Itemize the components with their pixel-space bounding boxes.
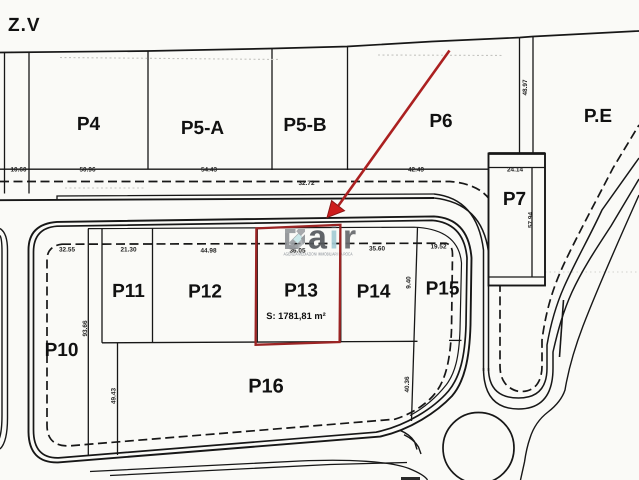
svg-text:42.49: 42.49	[408, 166, 424, 173]
svg-text:44.98: 44.98	[201, 248, 217, 255]
svg-text:P15: P15	[426, 279, 460, 300]
svg-text:P4: P4	[77, 114, 101, 135]
svg-text:57.94: 57.94	[528, 212, 535, 228]
svg-text:35.60: 35.60	[369, 246, 385, 253]
svg-text:P.E: P.E	[584, 106, 612, 127]
svg-text:40.36: 40.36	[404, 376, 411, 392]
svg-text:32.55: 32.55	[59, 247, 75, 254]
svg-text:49.43: 49.43	[111, 388, 118, 404]
svg-text:9.40: 9.40	[406, 276, 413, 289]
svg-text:P16: P16	[248, 376, 284, 398]
svg-text:50.96: 50.96	[80, 166, 96, 173]
svg-text:P13: P13	[284, 281, 318, 302]
svg-text:P11: P11	[112, 281, 145, 302]
svg-text:10.60: 10.60	[11, 166, 27, 173]
svg-text:19.52: 19.52	[431, 244, 447, 251]
svg-text:Z.V: Z.V	[8, 15, 41, 36]
svg-text:93.66: 93.66	[82, 320, 89, 336]
svg-text:32.72: 32.72	[299, 180, 315, 187]
svg-text:24.14: 24.14	[507, 166, 523, 173]
svg-text:P12: P12	[188, 282, 222, 303]
svg-text:P10: P10	[45, 340, 79, 361]
svg-text:P7: P7	[503, 189, 526, 210]
svg-text:P5-A: P5-A	[181, 118, 225, 139]
svg-text:P14: P14	[357, 282, 391, 303]
svg-text:21.30: 21.30	[121, 247, 137, 254]
svg-text:AGENZIA MEDIAZIONI IMMOBILIARI: AGENZIA MEDIAZIONI IMMOBILIARI LA ROCA	[284, 252, 353, 257]
svg-text:P6: P6	[429, 111, 452, 132]
svg-text:54.43: 54.43	[201, 166, 217, 173]
svg-text:48.97: 48.97	[522, 79, 529, 95]
svg-text:P5-B: P5-B	[283, 115, 326, 136]
svg-text:S: 1781,81 m²: S: 1781,81 m²	[266, 311, 325, 321]
